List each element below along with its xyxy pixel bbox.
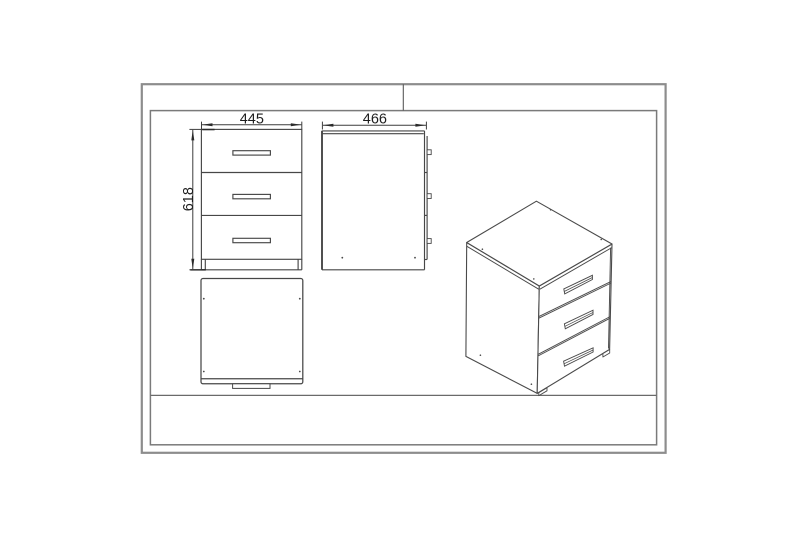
- svg-text:618: 618: [181, 187, 197, 211]
- svg-text:445: 445: [240, 111, 264, 127]
- svg-text:466: 466: [363, 112, 387, 128]
